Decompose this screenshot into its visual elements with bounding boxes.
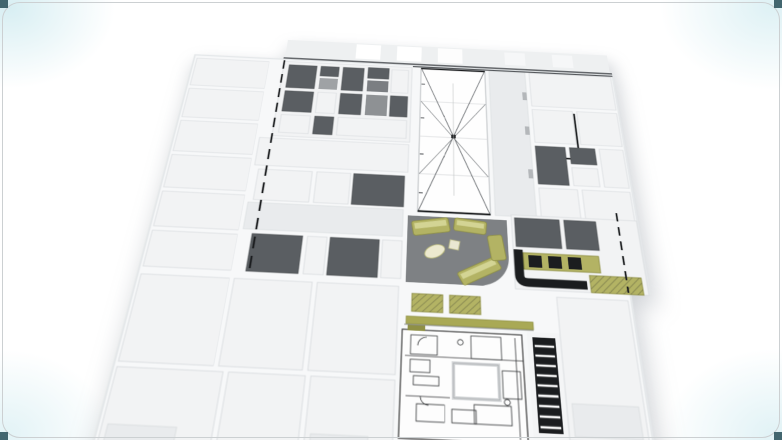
door-mark — [528, 169, 533, 178]
skylight-strip — [355, 44, 381, 59]
cell-dark — [286, 65, 317, 89]
room-floor — [308, 282, 399, 374]
cell-mid — [367, 80, 389, 92]
kitchen-cluster — [511, 215, 649, 296]
room-floor-dark — [564, 220, 600, 250]
room-floor — [577, 112, 623, 147]
skylight-strip — [438, 48, 463, 64]
cell-dark — [339, 93, 363, 114]
floor-plan-svg — [69, 32, 688, 440]
skylight-strip — [504, 52, 525, 65]
skylight-strip — [397, 46, 422, 62]
bottom-rooms — [95, 274, 655, 440]
selection-handle-bottom-right[interactable] — [774, 432, 782, 440]
cell-dark — [389, 96, 407, 117]
room-floor — [219, 278, 313, 370]
floor-inset — [102, 424, 177, 440]
room-floor — [154, 191, 245, 230]
room-floor — [313, 172, 350, 204]
selection-handle-top-right[interactable] — [774, 0, 782, 8]
room-floor-dark — [351, 174, 404, 207]
room-floor — [303, 236, 327, 275]
cell-dark — [341, 67, 364, 91]
skylight-strip — [552, 55, 574, 68]
selection-handle-bottom-left[interactable] — [0, 432, 8, 440]
central-lounge — [406, 215, 511, 288]
cell-light — [336, 117, 406, 138]
cell-mid — [318, 78, 338, 90]
room-floor-dark — [327, 237, 380, 277]
olive-hatched-table — [589, 275, 644, 295]
door-mark — [522, 92, 527, 100]
cell-mid — [365, 95, 388, 117]
bench-hatch — [412, 293, 443, 312]
room-floor — [173, 120, 257, 154]
bench-hatch — [450, 295, 481, 314]
room-floor — [164, 154, 252, 191]
floor-inset — [572, 404, 644, 440]
room-floor — [380, 240, 402, 279]
cad-inner-slab — [453, 363, 499, 400]
room-floor — [143, 230, 237, 270]
door-mark — [525, 126, 530, 135]
room-floor — [532, 109, 576, 144]
atrium-void — [418, 68, 491, 215]
cell-dark — [320, 66, 339, 76]
canvas — [0, 0, 782, 440]
storage-cell-grid — [272, 61, 412, 142]
appliance — [548, 256, 562, 269]
cad-linework-room — [398, 324, 528, 440]
room-floor — [190, 58, 269, 88]
cell-light — [278, 114, 310, 133]
cell-dark — [313, 116, 334, 135]
room-floor — [253, 169, 312, 202]
room-floor-dark — [514, 218, 561, 249]
appliance — [568, 257, 583, 270]
cell-dark — [282, 91, 314, 113]
floor-plan-3d-view — [69, 32, 688, 440]
room-floor — [182, 88, 264, 120]
room-floor — [529, 73, 616, 110]
room-floor — [572, 168, 600, 187]
room-floor — [302, 376, 395, 440]
cell-light — [391, 70, 409, 94]
room-floor-dark — [535, 146, 569, 185]
cell-dark — [368, 68, 390, 80]
cell-light — [315, 92, 336, 113]
cube-seat — [449, 240, 460, 251]
room-floor-dark — [569, 148, 597, 165]
room-floor — [214, 372, 305, 440]
selection-handle-top-left[interactable] — [0, 0, 8, 8]
appliance — [528, 255, 542, 268]
